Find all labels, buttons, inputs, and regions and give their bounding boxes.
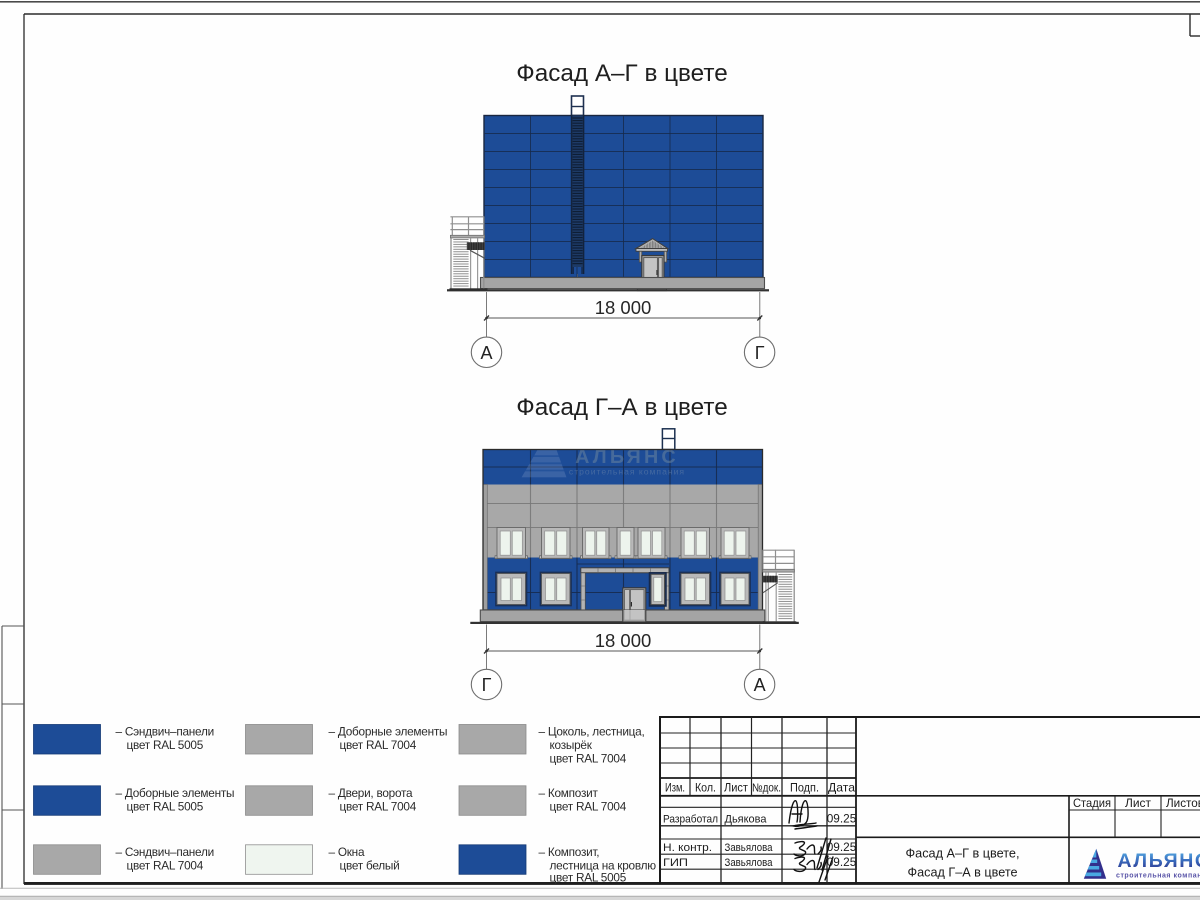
svg-text:Разработал: Разработал bbox=[663, 813, 718, 825]
svg-text:Завьялова: Завьялова bbox=[725, 857, 774, 869]
svg-text:Н. контр.: Н. контр. bbox=[663, 842, 712, 854]
svg-text:18 000: 18 000 bbox=[595, 297, 652, 318]
svg-text:Фасад А–Г в цвете,: Фасад А–Г в цвете, bbox=[906, 846, 1020, 861]
svg-text:А: А bbox=[480, 343, 492, 363]
svg-text:– Двери, ворота: – Двери, ворота bbox=[329, 786, 414, 800]
svg-text:цвет RAL 7004: цвет RAL 7004 bbox=[550, 799, 627, 813]
svg-text:цвет RAL 7004: цвет RAL 7004 bbox=[127, 858, 204, 872]
svg-text:– Сэндвич–панели: – Сэндвич–панели bbox=[116, 845, 214, 859]
svg-text:цвет RAL 7004: цвет RAL 7004 bbox=[340, 738, 417, 752]
svg-text:Фасад А–Г в цвете: Фасад А–Г в цвете bbox=[516, 60, 727, 87]
svg-text:Фасад Г–А в цвете: Фасад Г–А в цвете bbox=[516, 394, 727, 421]
svg-text:цвет RAL 5005: цвет RAL 5005 bbox=[127, 799, 204, 813]
svg-text:цвет RAL 7004: цвет RAL 7004 bbox=[340, 799, 417, 813]
svg-text:АЛЬЯНС: АЛЬЯНС bbox=[1118, 850, 1200, 872]
svg-text:цвет RAL 7004: цвет RAL 7004 bbox=[550, 752, 627, 766]
svg-text:А: А bbox=[754, 675, 766, 695]
svg-text:№док.: №док. bbox=[752, 781, 781, 794]
svg-text:– Цоколь, лестница,: – Цоколь, лестница, bbox=[539, 725, 645, 739]
svg-text:Стадия: Стадия bbox=[1073, 797, 1111, 810]
svg-text:Кол.: Кол. bbox=[695, 781, 716, 794]
svg-text:– Сэндвич–панели: – Сэндвич–панели bbox=[116, 725, 214, 739]
svg-text:Подп.: Подп. bbox=[790, 781, 819, 794]
svg-text:– Композит: – Композит bbox=[539, 786, 599, 800]
svg-text:09.25: 09.25 bbox=[827, 811, 857, 825]
svg-text:– Доборные элементы: – Доборные элементы bbox=[116, 786, 235, 800]
svg-text:Лист: Лист bbox=[1125, 797, 1152, 810]
svg-text:строительная компания: строительная компания bbox=[569, 467, 685, 477]
svg-text:ГИП: ГИП bbox=[663, 857, 688, 869]
svg-text:Фасад Г–А в цвете: Фасад Г–А в цвете bbox=[908, 865, 1018, 880]
svg-text:Г: Г bbox=[755, 343, 765, 363]
svg-text:Дьякова: Дьякова bbox=[725, 813, 768, 825]
svg-text:Дата: Дата bbox=[828, 781, 856, 794]
svg-text:строительная компания: строительная компания bbox=[1116, 873, 1200, 880]
svg-text:– Доборные элементы: – Доборные элементы bbox=[329, 725, 448, 739]
svg-text:цвет RAL 5005: цвет RAL 5005 bbox=[127, 738, 204, 752]
svg-text:09.25: 09.25 bbox=[827, 840, 857, 854]
svg-text:цвет RAL 5005: цвет RAL 5005 bbox=[550, 870, 627, 884]
svg-text:18 000: 18 000 bbox=[595, 630, 652, 651]
svg-text:Лист: Лист bbox=[724, 781, 749, 794]
svg-text:– Окна: – Окна bbox=[329, 845, 365, 859]
svg-text:Изм.: Изм. bbox=[665, 781, 685, 794]
svg-text:Г: Г bbox=[482, 675, 492, 695]
svg-text:– Композит,: – Композит, bbox=[539, 845, 600, 859]
svg-text:цвет белый: цвет белый bbox=[340, 858, 400, 872]
svg-text:Завьялова: Завьялова bbox=[725, 842, 774, 854]
svg-text:Листов: Листов bbox=[1166, 797, 1200, 810]
svg-text:козырёк: козырёк bbox=[550, 738, 593, 752]
